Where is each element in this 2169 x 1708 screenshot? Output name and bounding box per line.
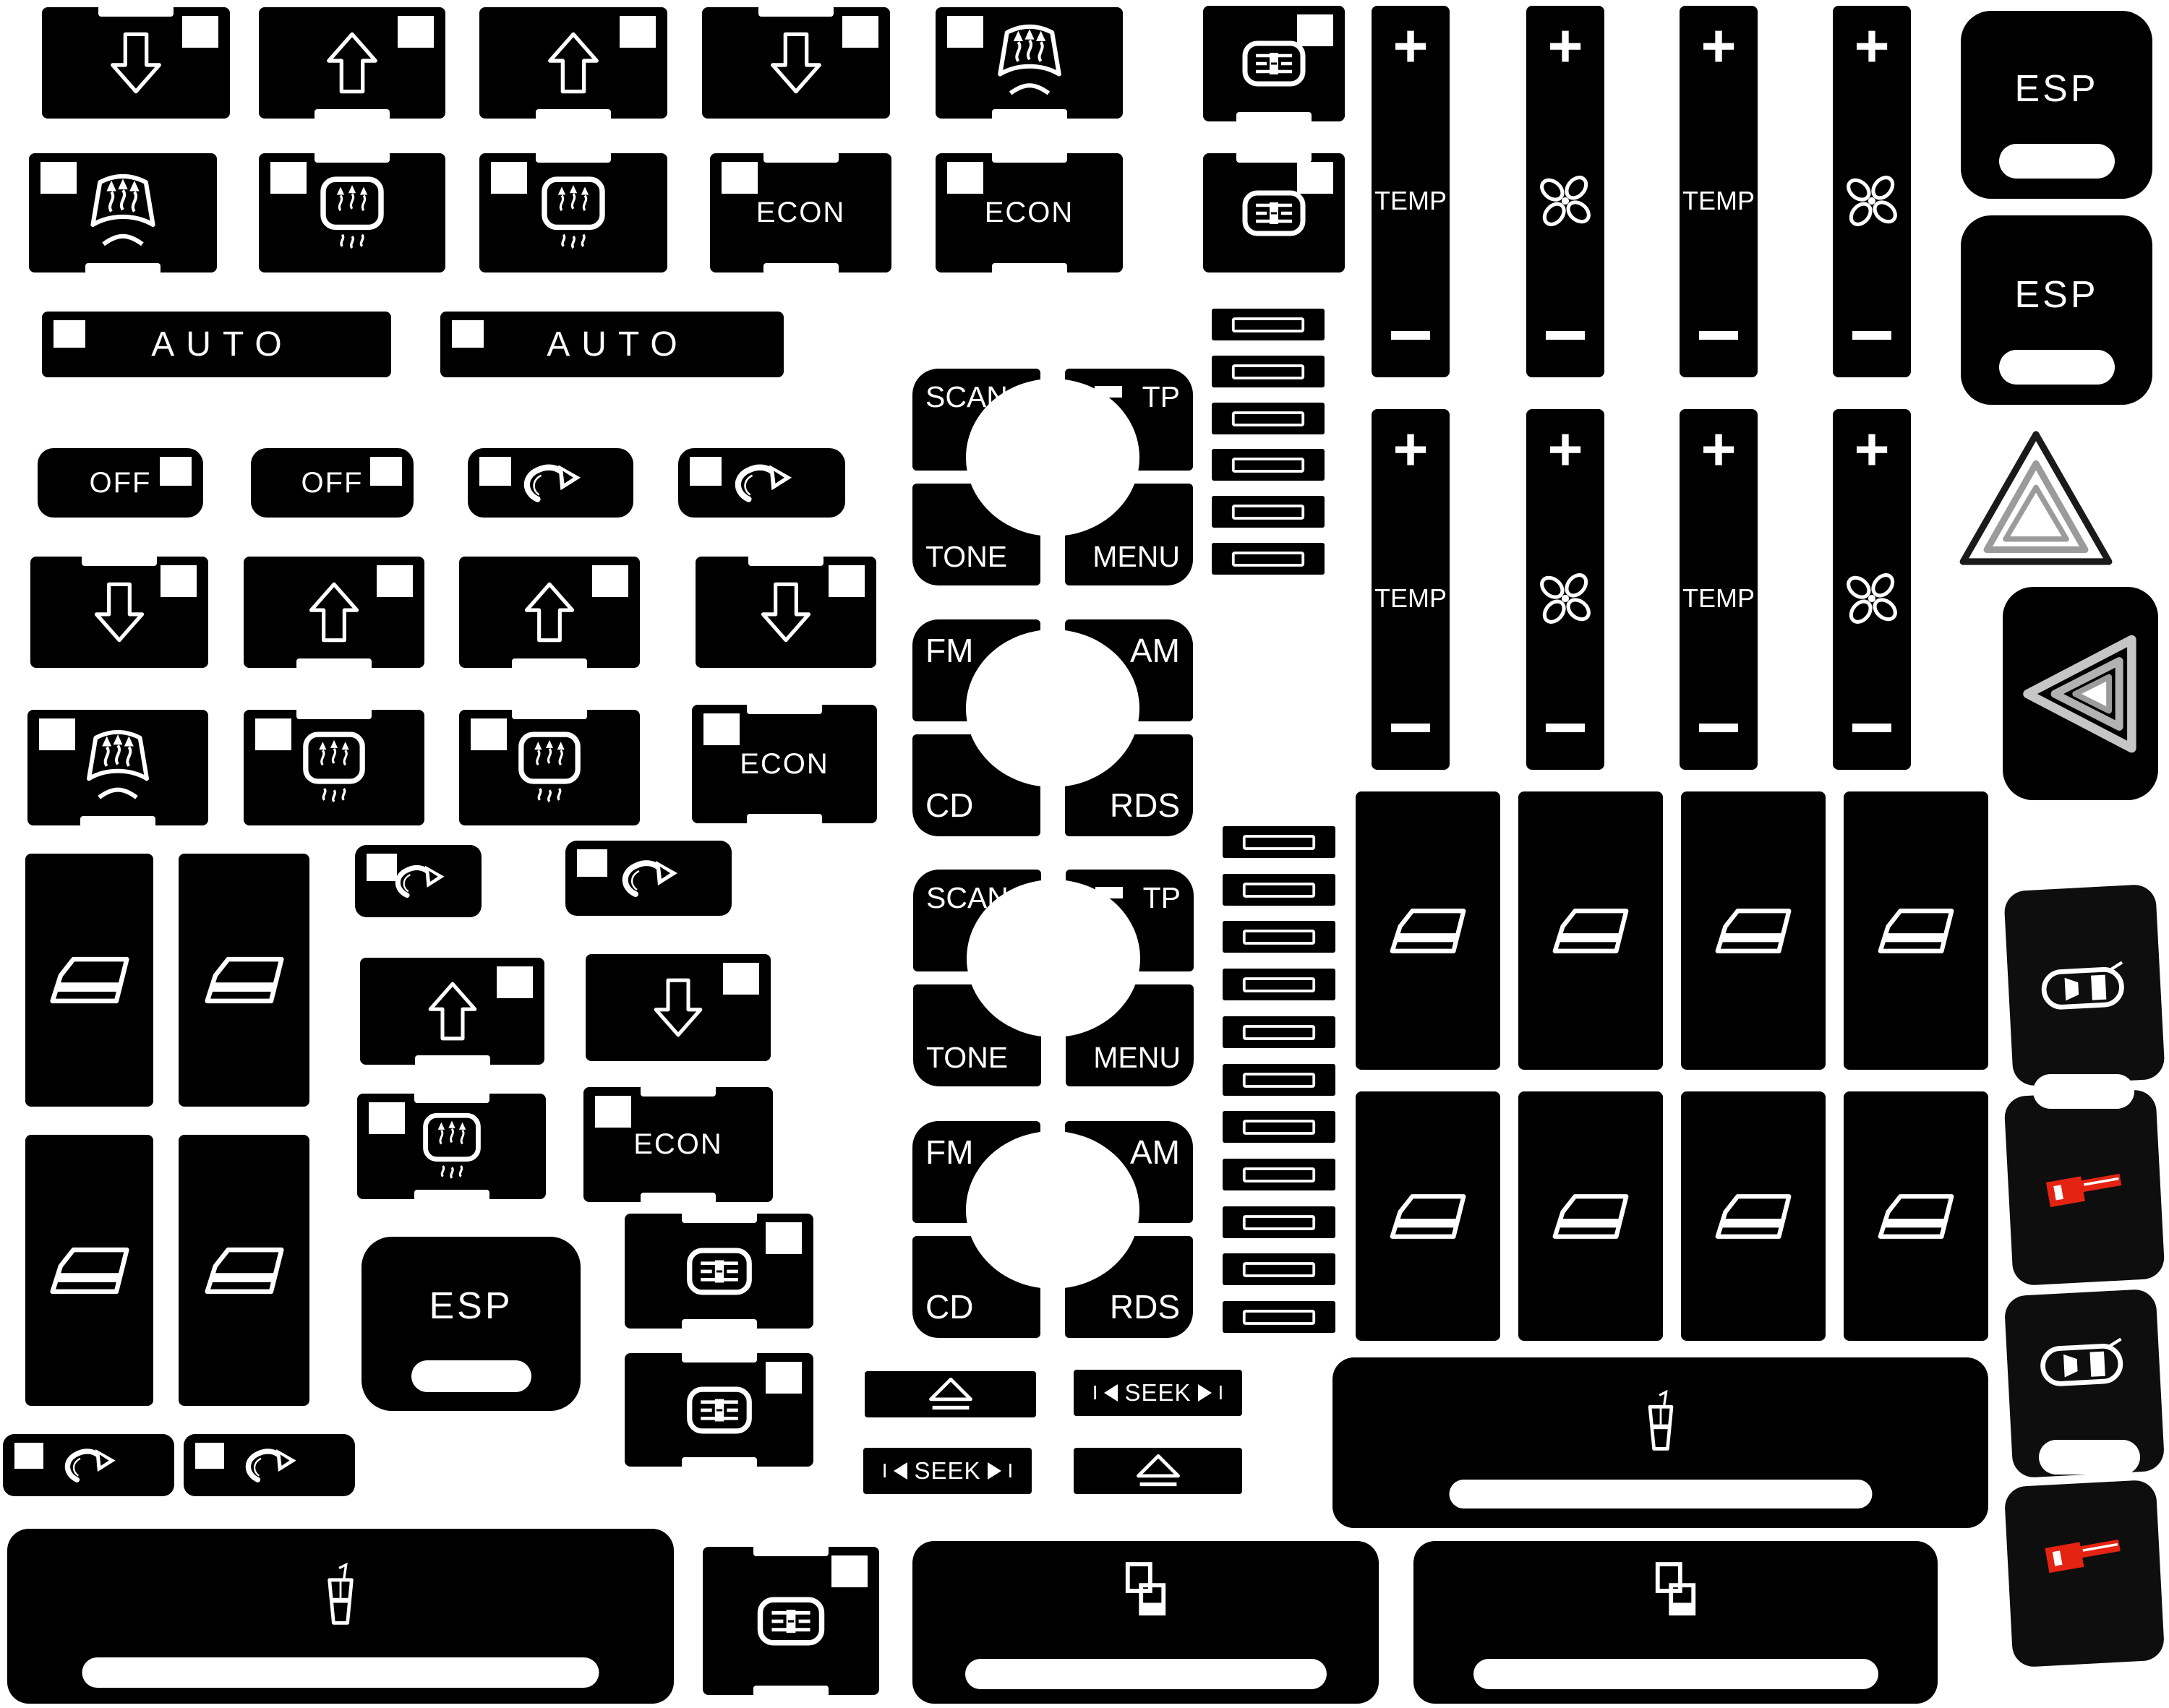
window-lifter-button[interactable] (1356, 791, 1500, 1070)
slot-window (965, 1659, 1327, 1689)
button-label: TONE (925, 540, 1007, 574)
slot-window (1449, 1480, 1872, 1509)
temp-label: TEMP (1682, 583, 1755, 614)
led-window (40, 162, 77, 194)
led-window (831, 1555, 868, 1587)
led-window (367, 854, 397, 881)
recirculation-vent-icon (757, 1597, 825, 1646)
blank-slot-button[interactable] (1223, 1159, 1335, 1190)
blank-slot-icon (1231, 316, 1306, 334)
rear-window-defrost-icon (300, 729, 368, 807)
arrow-down-icon (104, 29, 168, 97)
econ-button[interactable]: ECON (692, 705, 877, 823)
sliding-cover-icon (1652, 1560, 1700, 1619)
plus-label: + (1392, 22, 1428, 70)
rear-window-defrost-icon (515, 729, 583, 807)
fan-slider-button[interactable]: + (1526, 6, 1604, 377)
esp-button[interactable]: ESP (1961, 215, 2152, 405)
button-label: OFF (301, 467, 364, 499)
blank-slot-button[interactable] (1223, 1253, 1335, 1285)
temp-slider-button[interactable]: + TEMP (1372, 409, 1450, 770)
rear-defrost-button[interactable] (459, 710, 640, 825)
notch (536, 151, 611, 163)
led-window (471, 718, 507, 750)
blank-slot-icon (1231, 363, 1306, 381)
blank-slot-icon (1241, 833, 1317, 851)
notch (747, 814, 822, 825)
blank-slot-button[interactable] (1223, 921, 1335, 953)
notch (512, 708, 587, 719)
button-label: TONE (926, 1041, 1008, 1075)
led-window (947, 162, 983, 194)
arrow-down-button[interactable] (702, 7, 890, 119)
central-lock-button[interactable] (2003, 884, 2165, 1087)
arrow-down-icon (755, 579, 817, 645)
led-window (577, 849, 607, 877)
sliding-cover-bar[interactable] (1413, 1541, 1938, 1704)
led-window (195, 1443, 224, 1469)
notch (82, 554, 157, 566)
led-window (491, 162, 527, 194)
rear-defrost-button[interactable] (357, 1094, 546, 1199)
led-window (829, 565, 865, 597)
led-window (723, 963, 759, 995)
led-window (182, 16, 218, 48)
button-label: ESP (429, 1284, 513, 1328)
notch (85, 263, 161, 275)
window-lifter-button[interactable] (179, 1135, 309, 1406)
window-lifter-button[interactable] (1518, 1091, 1663, 1341)
seek-label: ISEEKI (1092, 1379, 1224, 1407)
button-label: ECON (756, 197, 846, 229)
window-lifter-icon (1385, 1190, 1471, 1243)
plus-label: + (1700, 22, 1736, 70)
eject-icon (1132, 1451, 1184, 1491)
notch (641, 1085, 716, 1097)
notch (992, 263, 1067, 275)
arrow-up-button[interactable] (459, 557, 640, 668)
blank-slot-icon (1241, 928, 1317, 946)
minus-icon (1852, 331, 1891, 340)
led-window (479, 457, 511, 486)
rear-window-defrost-icon (420, 1110, 484, 1183)
window-lifter-icon (1873, 904, 1959, 958)
window-lifter-button[interactable] (1844, 791, 1988, 1070)
fan-slider-button[interactable]: + (1526, 409, 1604, 770)
plus-label: + (1700, 425, 1736, 473)
arrow-down-button[interactable] (586, 954, 771, 1061)
led-window (595, 1096, 631, 1128)
recirculation-arrow-icon (236, 1441, 303, 1489)
window-lifter-button[interactable] (1681, 791, 1826, 1070)
led-window (703, 713, 740, 745)
rear-window-defrost-icon (317, 173, 387, 253)
central-lock-button[interactable] (2003, 1089, 2165, 1287)
led-window (592, 565, 628, 597)
led-window (255, 718, 291, 750)
decal-sheet: ECON ECON AUTO AUTO + TEMP + + TEMP + E (0, 0, 2169, 1708)
arrow-up-button[interactable] (244, 557, 424, 668)
button-label: MENU (1093, 1041, 1181, 1075)
car-central-lock-icon (2038, 1334, 2129, 1389)
windshield-defrost-icon (85, 173, 161, 253)
window-lifter-icon (200, 1243, 288, 1299)
blank-slot-button[interactable] (1223, 874, 1335, 906)
temp-label: TEMP (1374, 186, 1447, 216)
blank-slot-button[interactable] (1212, 356, 1325, 387)
notch (80, 816, 155, 828)
windshield-defrost-icon (82, 729, 154, 806)
led-window (161, 565, 197, 597)
recirculation-vent-button[interactable] (703, 1547, 879, 1695)
recirculation-vent-button[interactable] (625, 1214, 813, 1329)
blank-slot-button[interactable] (1212, 543, 1325, 575)
plus-label: + (1854, 22, 1889, 70)
minus-icon (1546, 331, 1585, 340)
arrow-up-button[interactable] (259, 7, 445, 119)
notch (682, 1457, 757, 1469)
button-label: AUTO (535, 325, 688, 364)
button-label: TP (1142, 380, 1180, 414)
windshield-defrost-icon (993, 24, 1066, 102)
cup-holder-bar[interactable] (7, 1529, 674, 1704)
window-lifter-icon (1548, 904, 1633, 958)
radio-quad-group: FM AM CD RDS (912, 1121, 1193, 1338)
window-lifter-icon (1711, 1190, 1796, 1243)
notch (1236, 151, 1312, 163)
sliding-cover-icon (1122, 1560, 1170, 1619)
notch (753, 1686, 829, 1697)
recirculation-arrow-icon (613, 852, 684, 904)
blank-slot-icon (1231, 503, 1306, 521)
temp-slider-button[interactable]: + TEMP (1372, 6, 1450, 377)
plus-label: + (1547, 425, 1583, 473)
button-label: AM (1130, 1133, 1180, 1172)
minus-icon (1699, 331, 1738, 340)
notch (536, 109, 611, 121)
temp-slider-button[interactable]: + TEMP (1680, 409, 1758, 770)
notch (315, 151, 390, 163)
notch (747, 703, 822, 714)
auto-button[interactable]: AUTO (42, 312, 391, 377)
recirculation-button[interactable] (3, 1434, 174, 1496)
window-lifter-button[interactable] (1356, 1091, 1500, 1341)
button-label: MENU (1092, 540, 1180, 574)
windshield-defrost-button[interactable] (27, 710, 208, 825)
window-lifter-icon (1711, 904, 1796, 958)
temp-label: TEMP (1682, 186, 1755, 216)
blank-slot-icon (1241, 1023, 1317, 1042)
fan-icon (1534, 170, 1596, 232)
radio-quad-group: SCAN TP TONE MENU (913, 870, 1194, 1086)
econ-button[interactable]: ECON (936, 153, 1123, 272)
hazard-triangle-icon (1956, 419, 2115, 577)
notch (682, 1351, 757, 1362)
led-window (160, 457, 192, 486)
blank-slot-button[interactable] (1223, 826, 1335, 858)
blank-slot-icon (1241, 1261, 1317, 1279)
seek-button[interactable]: ISEEKI (1074, 1370, 1242, 1416)
notch (748, 554, 823, 566)
blank-slot-icon (1241, 881, 1317, 899)
notch (98, 5, 174, 17)
recirculation-vent-icon (1242, 190, 1306, 236)
blank-slot-icon (1241, 1118, 1317, 1136)
radio-quad-group: FM AM CD RDS (912, 619, 1193, 836)
notch (2039, 1440, 2140, 1475)
blank-slot-button[interactable] (1223, 1206, 1335, 1238)
blank-slot-button[interactable] (1212, 496, 1325, 528)
fan-icon (1534, 567, 1596, 630)
window-lifter-button[interactable] (25, 854, 153, 1107)
window-lifter-icon (1548, 1190, 1633, 1243)
notch (641, 1193, 716, 1204)
arrow-up-icon (320, 29, 384, 97)
red-lock-key-icon (2040, 1531, 2126, 1576)
led-window (690, 457, 722, 486)
blank-slot-icon (1231, 410, 1306, 428)
arrow-down-button[interactable] (30, 557, 208, 668)
auto-button[interactable]: AUTO (440, 312, 784, 377)
rear-defrost-button[interactable] (244, 710, 424, 825)
notch (512, 658, 587, 670)
temp-label: TEMP (1374, 583, 1447, 614)
recirculation-button[interactable] (468, 448, 633, 518)
econ-button[interactable]: ECON (583, 1087, 773, 1202)
led-window (766, 1362, 802, 1394)
led-window (620, 16, 656, 48)
window-lifter-icon (1873, 1190, 1959, 1243)
button-label: FM (925, 631, 973, 670)
notch (992, 151, 1067, 163)
recirculation-vent-icon (686, 1386, 753, 1434)
notch (414, 1190, 489, 1201)
blank-slot-button[interactable] (1223, 1016, 1335, 1048)
window-lifter-icon (200, 952, 288, 1008)
seek-label: ISEEKI (882, 1457, 1014, 1485)
hazard-button[interactable] (2003, 587, 2158, 800)
notch (682, 1211, 757, 1223)
led-window (14, 1443, 43, 1469)
button-label: ESP (2014, 273, 2098, 317)
notch (763, 151, 839, 163)
blank-slot-icon (1241, 1166, 1317, 1184)
notch (296, 708, 372, 719)
plus-label: + (1854, 425, 1889, 473)
led-window (842, 16, 878, 48)
windshield-defrost-button[interactable] (29, 153, 217, 272)
arrow-up-icon (542, 29, 605, 97)
sliding-cover-bar[interactable] (912, 1541, 1379, 1704)
minus-icon (1391, 331, 1430, 340)
led-window (452, 320, 484, 348)
recirculation-arrow-icon (56, 1441, 122, 1489)
recirculation-vent-button[interactable] (625, 1353, 813, 1467)
button-label: RDS (1110, 786, 1180, 825)
window-lifter-icon (46, 952, 134, 1008)
button-label: RDS (1110, 1287, 1180, 1326)
blank-slot-button[interactable] (1212, 309, 1325, 340)
eject-icon (925, 1375, 977, 1415)
esp-button[interactable]: ESP (1961, 11, 2152, 199)
rotary-knob-cutout (967, 880, 1140, 1037)
window-lifter-icon (46, 1243, 134, 1299)
arrow-up-button[interactable] (360, 958, 544, 1065)
recirculation-button[interactable] (355, 845, 482, 917)
arrow-down-icon (764, 29, 828, 97)
recirculation-arrow-icon (515, 456, 587, 510)
button-label: CD (925, 786, 973, 825)
plus-label: + (1392, 425, 1428, 473)
led-window (947, 16, 983, 48)
notch (682, 1319, 757, 1331)
arrow-up-icon (518, 579, 581, 645)
window-lifter-button[interactable] (1844, 1091, 1988, 1341)
cup-holder-bar[interactable] (1332, 1357, 1988, 1528)
notch (758, 5, 834, 17)
minus-icon (1852, 724, 1891, 732)
led-window (370, 457, 402, 486)
arrow-down-icon (88, 579, 150, 645)
cup-holder-icon (318, 1559, 363, 1628)
arrow-up-icon (422, 979, 483, 1044)
button-label: CD (925, 1287, 973, 1326)
arrow-down-icon (648, 975, 709, 1040)
led-window (766, 1222, 802, 1254)
fan-icon (1841, 567, 1903, 630)
central-lock-button[interactable] (2004, 1480, 2165, 1668)
rear-defrost-button[interactable] (259, 153, 445, 272)
rear-defrost-button[interactable] (479, 153, 667, 272)
esp-button[interactable]: ESP (361, 1237, 581, 1411)
recirculation-arrow-icon (726, 456, 798, 510)
temp-slider-button[interactable]: + TEMP (1680, 6, 1758, 377)
led-window (369, 1102, 405, 1134)
slot-window (1999, 350, 2115, 385)
seek-button[interactable]: ISEEKI (863, 1448, 1032, 1494)
button-label: OFF (90, 467, 152, 499)
fan-icon (1841, 170, 1903, 232)
red-lock-key-icon (2042, 1165, 2128, 1210)
arrow-down-button[interactable] (42, 7, 230, 119)
notch (315, 109, 390, 121)
recirculation-vent-button[interactable] (1203, 6, 1345, 121)
notch (992, 109, 1067, 121)
window-lifter-button[interactable] (179, 854, 309, 1107)
led-window (39, 718, 75, 750)
recirculation-vent-button[interactable] (1203, 153, 1345, 272)
button-label: TP (1143, 881, 1181, 915)
button-label: FM (925, 1133, 973, 1172)
blank-slot-icon (1231, 456, 1306, 474)
blank-slot-icon (1231, 550, 1306, 568)
window-lifter-button[interactable] (25, 1135, 153, 1406)
notch (1236, 112, 1312, 124)
recirculation-button[interactable] (184, 1434, 355, 1496)
blank-slot-icon (1241, 1071, 1317, 1089)
button-label: ECON (740, 748, 829, 781)
led-window (270, 162, 307, 194)
minus-icon (1699, 724, 1738, 732)
slot-window (1999, 144, 2115, 179)
recirculation-vent-icon (686, 1248, 753, 1295)
button-label: AM (1130, 631, 1180, 670)
slot-window (1473, 1659, 1878, 1689)
notch (763, 263, 839, 275)
recirculation-button[interactable] (565, 841, 732, 916)
arrow-up-icon (303, 579, 365, 645)
blank-slot-button[interactable] (1212, 403, 1325, 434)
notch (296, 658, 372, 670)
notch (2033, 1074, 2134, 1109)
recirculation-vent-icon (1242, 40, 1306, 87)
button-label: ESP (2014, 67, 2098, 111)
radio-quad-group: SCAN TP TONE MENU (912, 369, 1193, 585)
blank-slot-icon (1241, 976, 1317, 994)
led-window (497, 966, 533, 998)
button-label: ECON (633, 1128, 723, 1161)
led-window (1297, 162, 1333, 194)
blank-slot-icon (1241, 1308, 1317, 1326)
recirculation-button[interactable] (678, 448, 845, 518)
window-lifter-icon (1385, 904, 1471, 958)
window-lifter-button[interactable] (1681, 1091, 1826, 1341)
button-label: AUTO (140, 325, 293, 364)
led-window (54, 320, 85, 348)
blank-slot-button[interactable] (1223, 1301, 1335, 1333)
windshield-defrost-button[interactable] (936, 7, 1123, 119)
slot-window (411, 1360, 531, 1392)
arrow-down-button[interactable] (696, 557, 876, 668)
hazard-triangle-icon (2019, 632, 2143, 756)
notch (415, 1055, 490, 1067)
minus-icon (1546, 724, 1585, 732)
car-central-lock-icon (2039, 957, 2130, 1013)
blank-slot-button[interactable] (1223, 969, 1335, 1000)
led-window (1297, 14, 1333, 46)
led-window (377, 565, 413, 597)
blank-slot-button[interactable] (1223, 1111, 1335, 1143)
rear-window-defrost-icon (539, 173, 608, 253)
notch (414, 1091, 489, 1103)
eject-button[interactable] (1074, 1448, 1242, 1494)
led-window (398, 16, 434, 48)
button-label: ECON (985, 197, 1074, 229)
slot-window (82, 1657, 599, 1688)
fan-slider-button[interactable]: + (1833, 6, 1911, 377)
rotary-knob-cutout (966, 630, 1139, 787)
econ-button[interactable]: ECON (710, 153, 891, 272)
led-window (722, 162, 758, 194)
eject-button[interactable] (865, 1371, 1036, 1417)
plus-label: + (1547, 22, 1583, 70)
blank-slot-button[interactable] (1212, 449, 1325, 481)
blank-slot-button[interactable] (1223, 1064, 1335, 1096)
blank-slot-icon (1241, 1214, 1317, 1232)
window-lifter-button[interactable] (1518, 791, 1663, 1070)
rotary-knob-cutout (966, 1131, 1139, 1289)
notch (753, 1545, 829, 1556)
cup-holder-icon (1639, 1386, 1682, 1454)
fan-slider-button[interactable]: + (1833, 409, 1911, 770)
rotary-knob-cutout (966, 379, 1139, 536)
arrow-up-button[interactable] (479, 7, 667, 119)
off-button[interactable]: OFF (38, 448, 203, 518)
off-button[interactable]: OFF (251, 448, 414, 518)
minus-icon (1391, 724, 1430, 732)
